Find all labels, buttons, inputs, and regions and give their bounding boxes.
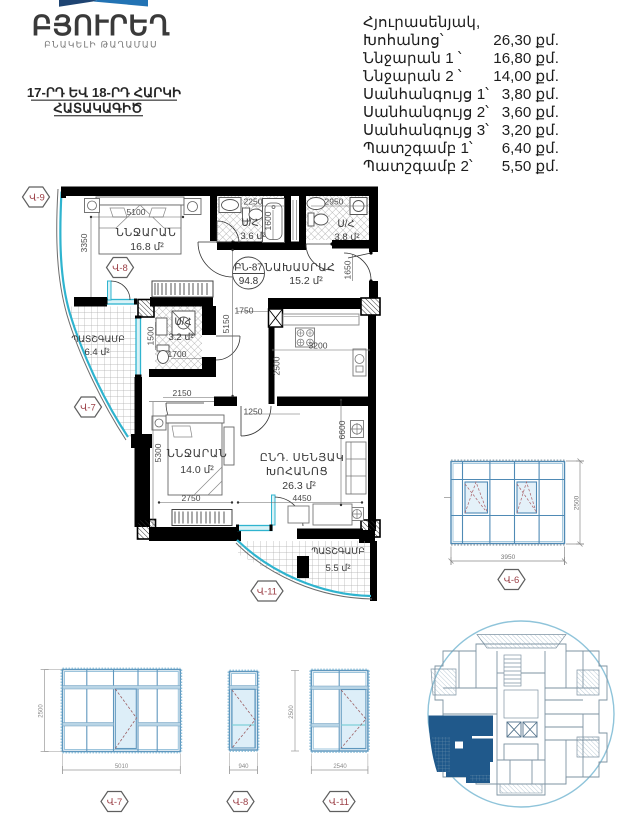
svg-text:Վ-7: Վ-7 [107, 797, 123, 808]
svg-text:ՊԱՏՇԳԱՄԲ: ՊԱՏՇԳԱՄԲ [71, 334, 124, 344]
svg-text:3,60 քմ.: 3,60 քմ. [502, 104, 559, 121]
svg-text:3.6 մ²: 3.6 մ² [240, 231, 265, 242]
svg-text:26.3 մ²: 26.3 մ² [282, 480, 316, 492]
svg-text:Վ-9: Վ-9 [29, 193, 45, 204]
svg-text:Խոհանոց՝: Խոհանոց՝ [363, 32, 444, 49]
svg-text:15.2 մ²: 15.2 մ² [289, 275, 323, 287]
svg-text:16,80 քմ.: 16,80 քմ. [493, 50, 559, 67]
svg-text:ԲՆ-87: ԲՆ-87 [234, 263, 262, 274]
svg-text:3,80 քմ.: 3,80 քմ. [502, 86, 559, 103]
svg-text:1500: 1500 [146, 326, 156, 345]
svg-text:94.8: 94.8 [239, 276, 259, 287]
svg-text:2250: 2250 [244, 197, 263, 207]
svg-text:2500: 2500 [272, 356, 282, 375]
svg-text:Ննջարան 1 ՝: Ննջարան 1 ՝ [363, 50, 462, 67]
svg-text:5010: 5010 [115, 764, 129, 770]
svg-text:17-ՐԴ ԵՎ 18-ՐԴ ՀԱՐԿԻ: 17-ՐԴ ԵՎ 18-ՐԴ ՀԱՐԿԻ [27, 85, 181, 100]
svg-text:5150: 5150 [221, 314, 231, 333]
svg-text:1750: 1750 [235, 306, 254, 316]
svg-text:Վ-7: Վ-7 [80, 403, 96, 414]
svg-text:Սանհանգույց 2՝: Սանհանգույց 2՝ [363, 104, 489, 121]
svg-text:Սանհանգույց 3՝: Սանհանգույց 3՝ [363, 122, 489, 139]
svg-text:Պատշգամբ 2՝: Պատշգամբ 2՝ [363, 158, 473, 175]
svg-text:Վ-11: Վ-11 [329, 797, 349, 808]
svg-text:6,40 քմ.: 6,40 քմ. [502, 140, 559, 157]
svg-text:2150: 2150 [173, 388, 192, 398]
svg-text:Վ-6: Վ-6 [504, 575, 520, 586]
svg-text:6.4 մ²: 6.4 մ² [84, 347, 109, 358]
svg-text:5300: 5300 [153, 443, 163, 462]
svg-text:Հյուրասենյակ,: Հյուրասենյակ, [363, 14, 480, 31]
svg-text:2540: 2540 [333, 764, 347, 770]
svg-text:2750: 2750 [182, 493, 201, 503]
svg-text:1250: 1250 [244, 407, 263, 417]
svg-text:Վ-8: Վ-8 [233, 797, 249, 808]
svg-text:16.8 մ²: 16.8 մ² [130, 241, 164, 253]
svg-text:5.5 մ²: 5.5 մ² [325, 563, 350, 574]
svg-text:ՆԱԽԱՍՐԱՀ: ՆԱԽԱՍՐԱՀ [265, 262, 336, 274]
svg-text:2500: 2500 [574, 495, 581, 510]
svg-text:Ս/Հ: Ս/Հ [174, 317, 191, 328]
svg-text:26,30 քմ.: 26,30 քմ. [493, 32, 559, 49]
svg-text:ԲՆԱԿԵԼԻ ԹԱՂԱՄԱՍ: ԲՆԱԿԵԼԻ ԹԱՂԱՄԱՍ [44, 40, 158, 50]
svg-text:4450: 4450 [293, 493, 312, 503]
svg-text:2950: 2950 [325, 197, 344, 207]
svg-text:Ս/Հ: Ս/Հ [337, 219, 354, 230]
svg-text:Պատշգամբ 1՝: Պատշգամբ 1՝ [363, 140, 473, 157]
svg-text:3.8 մ²: 3.8 մ² [334, 232, 359, 243]
svg-text:Ս/Հ: Ս/Հ [241, 218, 258, 229]
svg-text:ՆՆՋԱՐԱՆ: ՆՆՋԱՐԱՆ [116, 227, 177, 239]
svg-text:2500: 2500 [289, 705, 295, 719]
svg-text:Վ-11: Վ-11 [257, 587, 277, 598]
svg-text:3,20 քմ.: 3,20 քմ. [502, 122, 559, 139]
svg-text:2500: 2500 [39, 704, 45, 718]
svg-text:5,50 քմ.: 5,50 քմ. [502, 158, 559, 175]
svg-text:14,00 քմ.: 14,00 քմ. [493, 68, 559, 85]
svg-text:ԲՅՈՒՐԵՂ: ԲՅՈՒՐԵՂ [32, 10, 170, 41]
svg-text:940: 940 [238, 764, 249, 770]
svg-text:ՆՆՋԱՐԱՆ: ՆՆՋԱՐԱՆ [167, 448, 228, 460]
svg-text:Ննջարան 2 ՝: Ննջարան 2 ՝ [363, 68, 462, 85]
svg-text:ԸՆԴ. ՍԵՆՅԱԿ: ԸՆԴ. ՍԵՆՅԱԿ [260, 452, 345, 464]
svg-text:ՊԱՏՇԳԱՄԲ: ՊԱՏՇԳԱՄԲ [311, 546, 364, 556]
svg-text:3950: 3950 [501, 554, 516, 561]
svg-text:1650: 1650 [343, 260, 353, 279]
svg-text:3.2 մ²: 3.2 մ² [168, 332, 193, 343]
svg-text:3350: 3350 [79, 233, 89, 252]
svg-text:ԽՈՀԱՆՈՑ: ԽՈՀԱՆՈՑ [266, 466, 328, 478]
svg-text:3200: 3200 [309, 341, 328, 351]
svg-text:Վ-8: Վ-8 [112, 263, 128, 274]
svg-text:ՀԱՏԱԿԱԳԻԾ: ՀԱՏԱԿԱԳԻԾ [53, 101, 142, 116]
svg-text:1700: 1700 [168, 349, 187, 359]
svg-text:5100: 5100 [127, 207, 146, 217]
svg-text:1600: 1600 [263, 211, 273, 230]
svg-text:14.0 մ²: 14.0 մ² [180, 464, 214, 476]
svg-text:Սանհանգույց 1՝: Սանհանգույց 1՝ [363, 86, 489, 103]
svg-text:6600: 6600 [337, 420, 347, 439]
